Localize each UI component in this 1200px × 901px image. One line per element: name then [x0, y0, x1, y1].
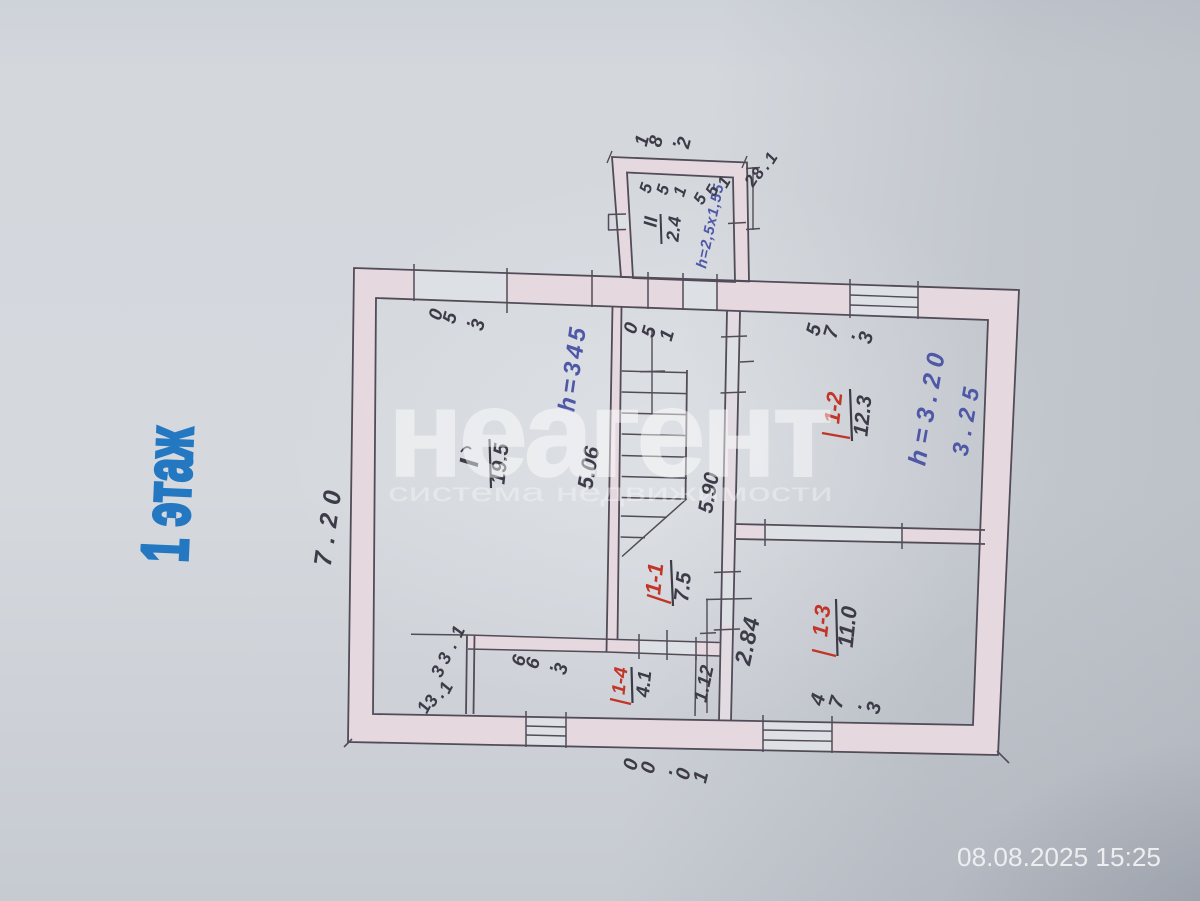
svg-text:2.4: 2.4 — [662, 215, 685, 243]
svg-text:11.0: 11.0 — [833, 604, 862, 648]
svg-text:2: 2 — [673, 135, 696, 152]
svg-text:12.3: 12.3 — [849, 394, 876, 437]
svg-text:3: 3 — [862, 700, 886, 717]
svg-text:1: 1 — [447, 623, 469, 641]
svg-text:система недвижимости: система недвижимости — [388, 477, 833, 507]
svg-text:3.25: 3.25 — [947, 378, 986, 458]
svg-text:3: 3 — [854, 329, 878, 346]
svg-text:3: 3 — [433, 649, 455, 667]
svg-text:2.84: 2.84 — [729, 614, 765, 668]
svg-text:7.5: 7.5 — [670, 571, 696, 603]
svg-text:.: . — [441, 638, 461, 651]
svg-text:3: 3 — [550, 661, 573, 677]
svg-text:7.20: 7.20 — [309, 480, 349, 568]
svg-text:1: 1 — [670, 184, 691, 199]
svg-text:3: 3 — [427, 663, 449, 681]
svg-text:1.12: 1.12 — [690, 663, 718, 704]
svg-text:4.1: 4.1 — [633, 670, 657, 699]
svg-text:1-3: 1-3 — [807, 604, 835, 638]
svg-text:1: 1 — [656, 327, 679, 343]
svg-text:3: 3 — [467, 317, 490, 333]
svg-text:1-4: 1-4 — [609, 666, 633, 696]
svg-text:1-1: 1-1 — [640, 562, 668, 596]
svg-text:h=3.20: h=3.20 — [903, 344, 952, 468]
svg-text:1 этаж: 1 этаж — [127, 425, 207, 564]
svg-text:II: II — [641, 215, 663, 228]
svg-text:08.08.2025 15:25: 08.08.2025 15:25 — [957, 844, 1161, 872]
